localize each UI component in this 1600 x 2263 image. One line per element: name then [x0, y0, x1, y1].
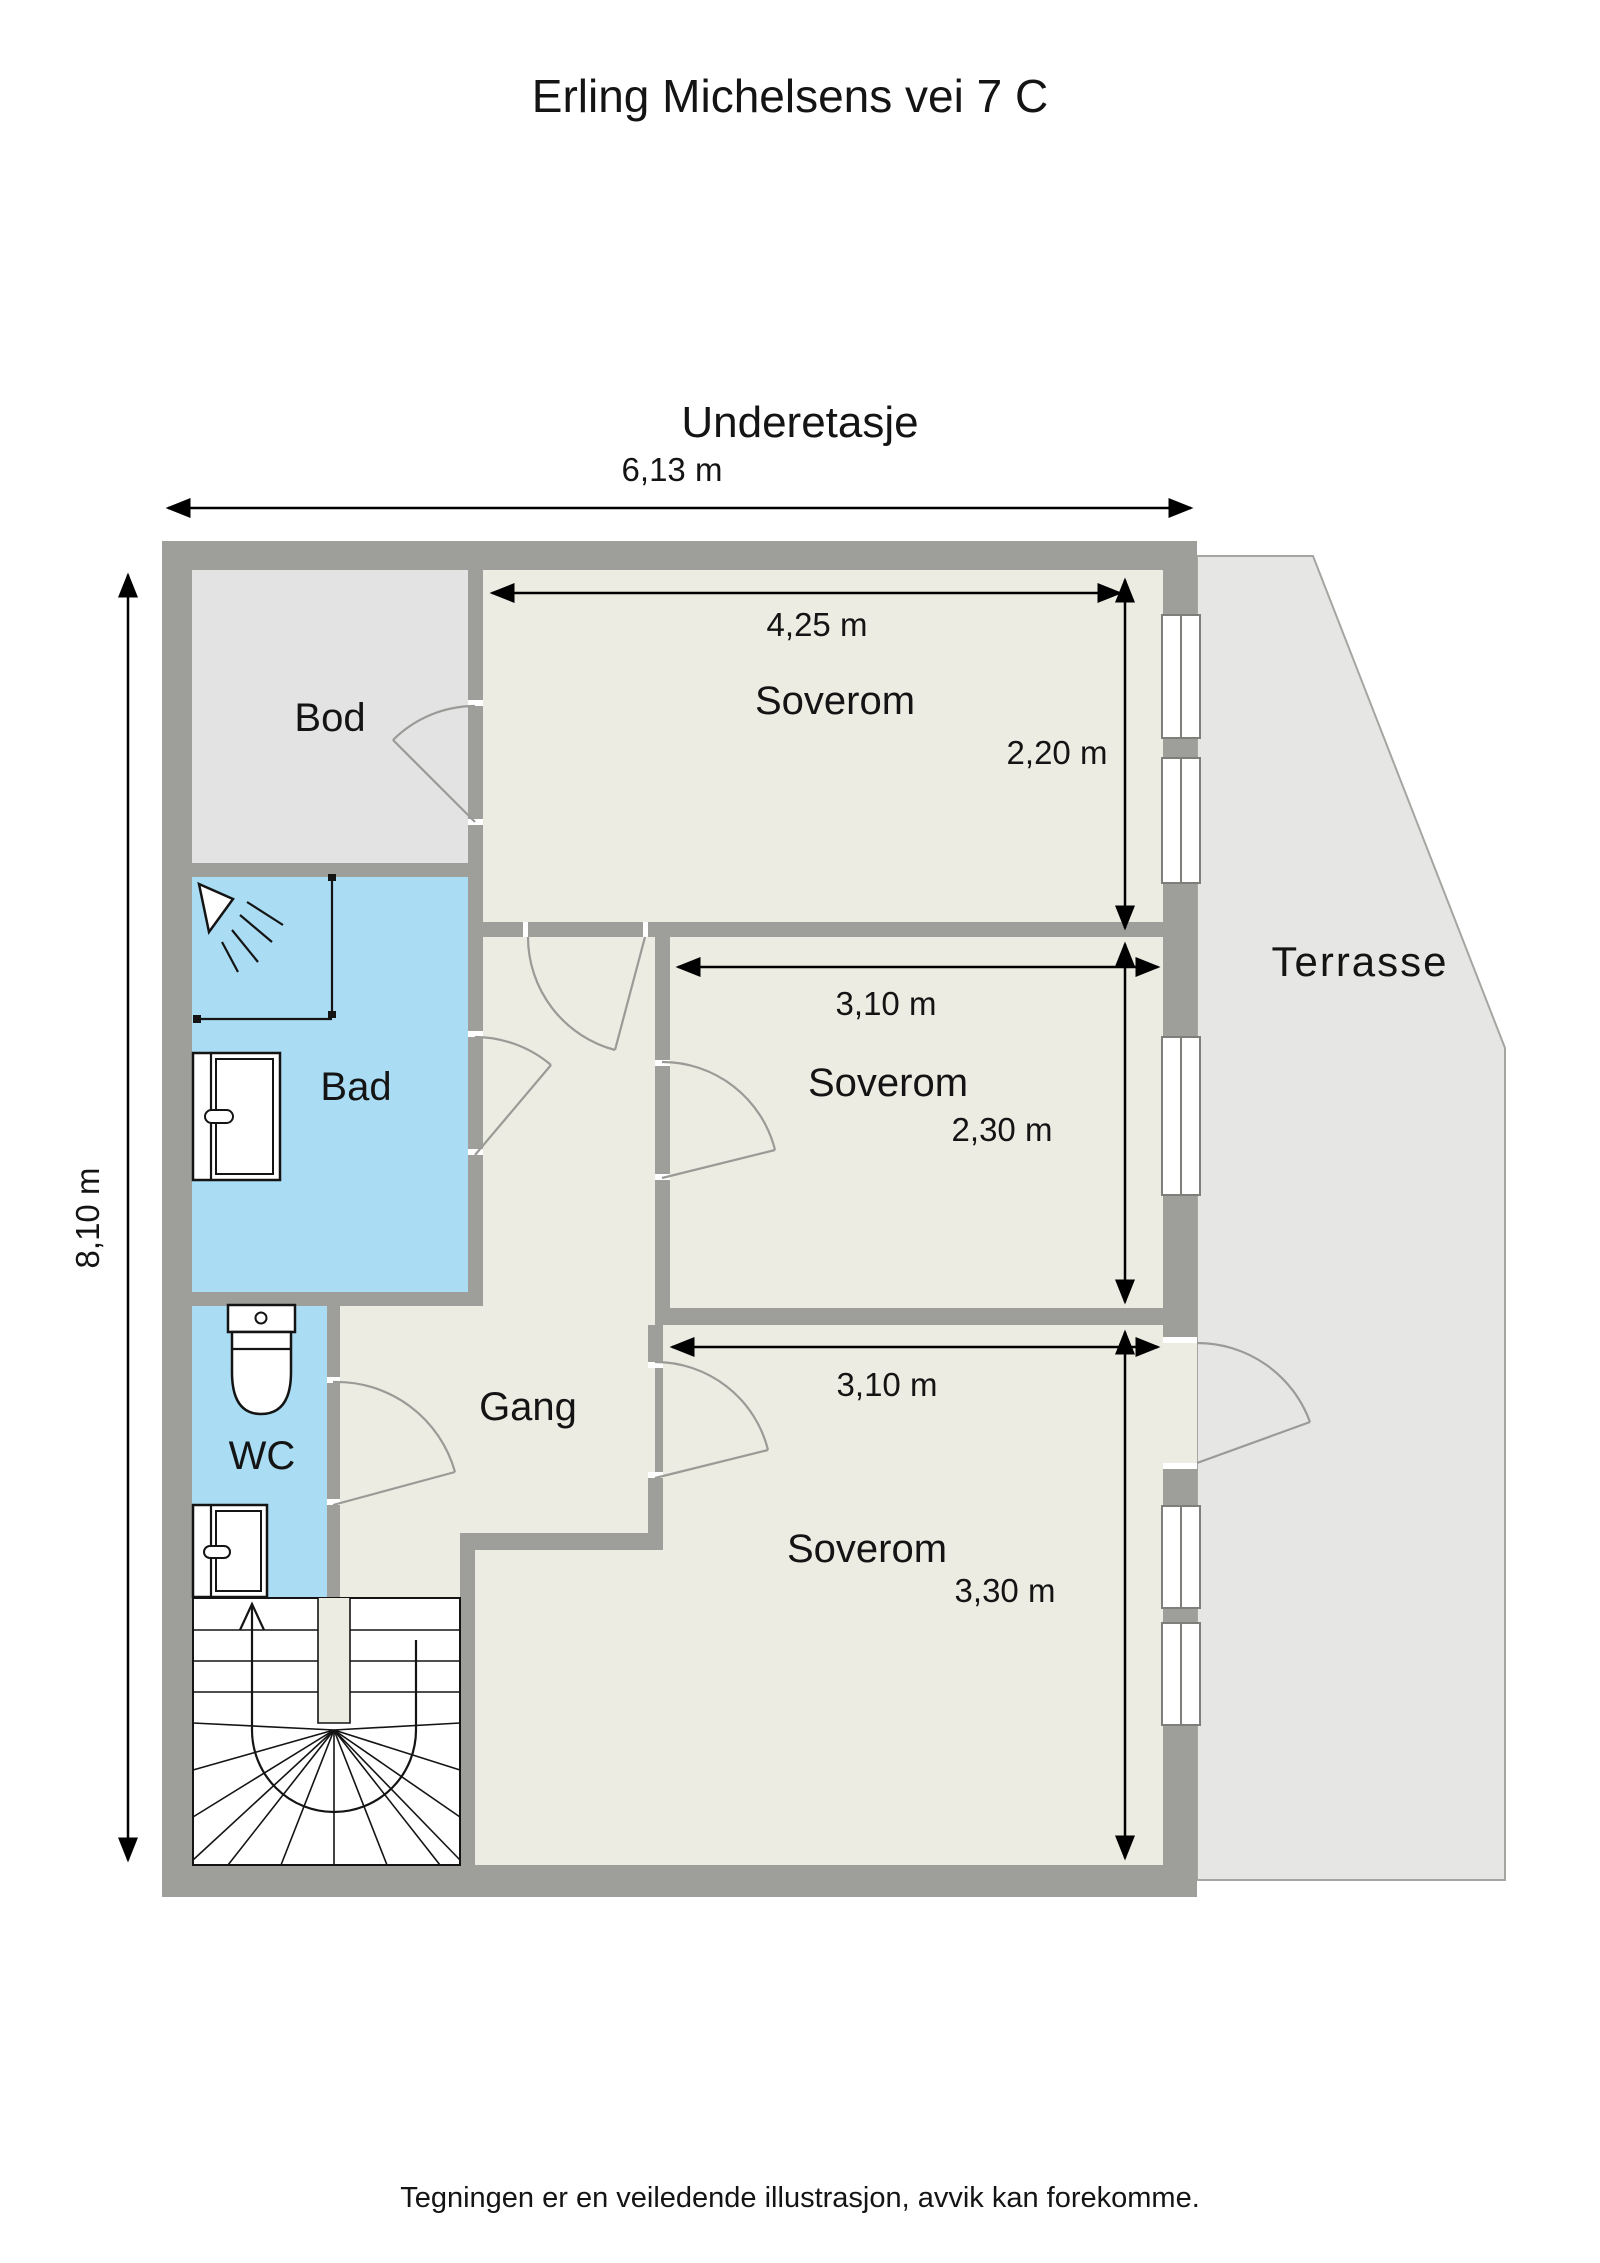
page-title: Erling Michelsens vei 7 C	[532, 70, 1048, 122]
floor-plan-canvas: Erling Michelsens vei 7 C Underetasje Te…	[0, 0, 1600, 2263]
bod-label: Bod	[294, 696, 365, 740]
bad-label: Bad	[320, 1065, 391, 1109]
wall-stair-soverom3	[460, 1550, 475, 1865]
wall-soverom1-bottom-left	[483, 922, 523, 937]
dimension-label-soverom1-width: 4,25 m	[767, 606, 868, 643]
terrace-label: Terrasse	[1271, 938, 1448, 985]
wall-bod-bottom	[192, 863, 483, 877]
terrace-door-opening	[1163, 1337, 1197, 1469]
soverom1-label: Soverom	[755, 679, 915, 723]
wall-soverom1-bottom-right	[648, 922, 1163, 937]
floor-plan-page: Erling Michelsens vei 7 C Underetasje Te…	[0, 0, 1600, 2263]
cabinet-handle	[205, 1110, 233, 1123]
disclaimer-text: Tegningen er en veiledende illustrasjon,…	[400, 2182, 1200, 2214]
cabinet-handle	[204, 1546, 230, 1558]
bathroom-cabinet	[193, 1053, 280, 1180]
dimension-label-soverom1-height: 2,20 m	[1007, 734, 1108, 771]
door-jamb	[523, 922, 528, 937]
dimension-label-soverom2-height: 2,30 m	[952, 1111, 1053, 1148]
soverom3-label: Soverom	[787, 1527, 947, 1571]
wc-cabinet	[193, 1505, 267, 1597]
toilet-bowl	[232, 1332, 291, 1414]
wall-gang-bottom	[460, 1533, 663, 1550]
wall-bad-right-upper	[468, 877, 483, 1037]
dimension-label-total-height: 8,10 m	[69, 1168, 106, 1269]
dimension-label-soverom2-width: 3,10 m	[836, 985, 937, 1022]
wall-gang-soverom2-lower	[655, 1174, 670, 1325]
door-jamb	[643, 922, 648, 937]
wc-label: WC	[229, 1434, 296, 1478]
wall-bad-right-lower	[468, 1149, 483, 1306]
floor-name-label: Underetasje	[681, 398, 918, 447]
dimension-label-soverom3-width: 3,10 m	[837, 1366, 938, 1403]
windows	[1162, 615, 1200, 1725]
door-jamb	[1163, 1337, 1197, 1343]
shower-screen-tick	[328, 874, 336, 881]
wall-wc-right-upper	[327, 1306, 340, 1377]
dimension-label-total-width: 6,13 m	[622, 451, 723, 488]
wall-bod-right-lower	[468, 825, 483, 877]
dimension-label-soverom3-height: 3,30 m	[955, 1572, 1056, 1609]
door-jamb	[1163, 1463, 1197, 1469]
wall-wc-right-lower	[327, 1499, 340, 1598]
stair-void	[318, 1598, 350, 1723]
soverom2-label: Soverom	[808, 1061, 968, 1105]
shower-screen-tick	[193, 1015, 201, 1023]
wall-bod-right-upper	[468, 570, 483, 700]
winder-staircase	[193, 1598, 460, 1865]
toilet	[228, 1305, 295, 1414]
terrace-outline	[1197, 556, 1505, 1880]
shower-screen-tick	[328, 1011, 336, 1018]
wall-gang-soverom3-upper	[648, 1325, 663, 1362]
gang-label: Gang	[479, 1385, 577, 1429]
toilet-flush-button	[256, 1313, 267, 1324]
wall-gang-soverom2-upper	[655, 937, 670, 1060]
terrace-area: Terrasse	[1197, 556, 1505, 1880]
wall-soverom2-bottom	[655, 1308, 1163, 1325]
door-jamb	[468, 819, 483, 825]
terrace-door-passage	[1163, 1343, 1197, 1463]
